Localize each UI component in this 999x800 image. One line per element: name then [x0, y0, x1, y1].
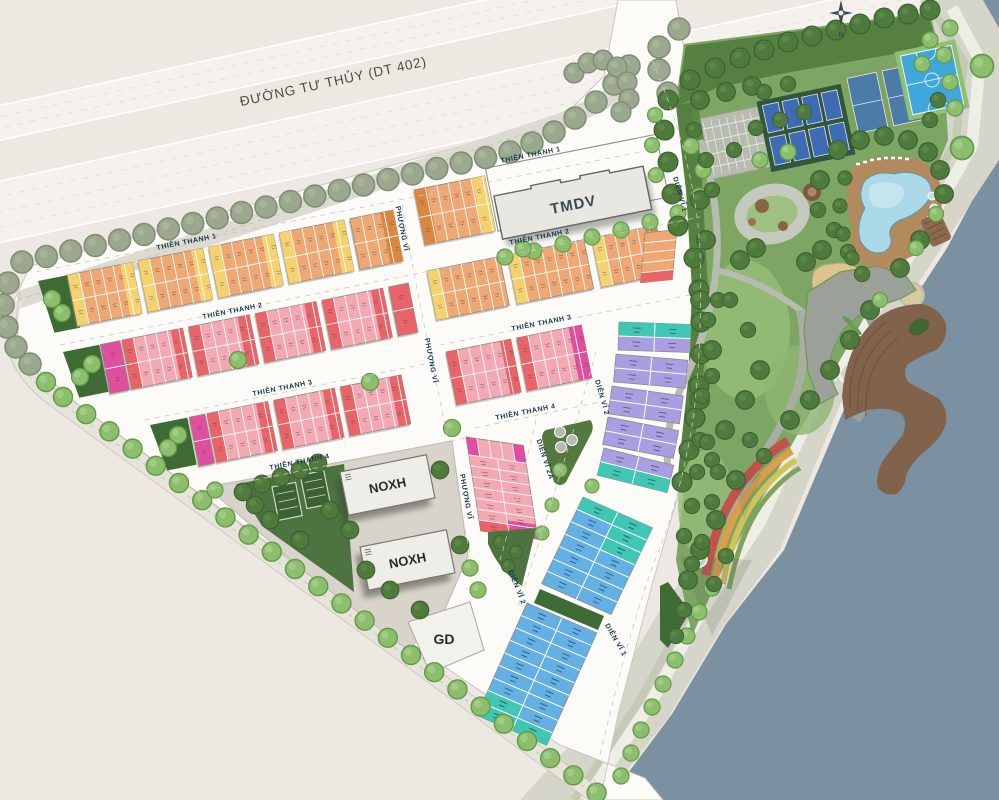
svg-text:GD: GD	[434, 631, 455, 647]
svg-text:N: N	[838, 32, 843, 39]
